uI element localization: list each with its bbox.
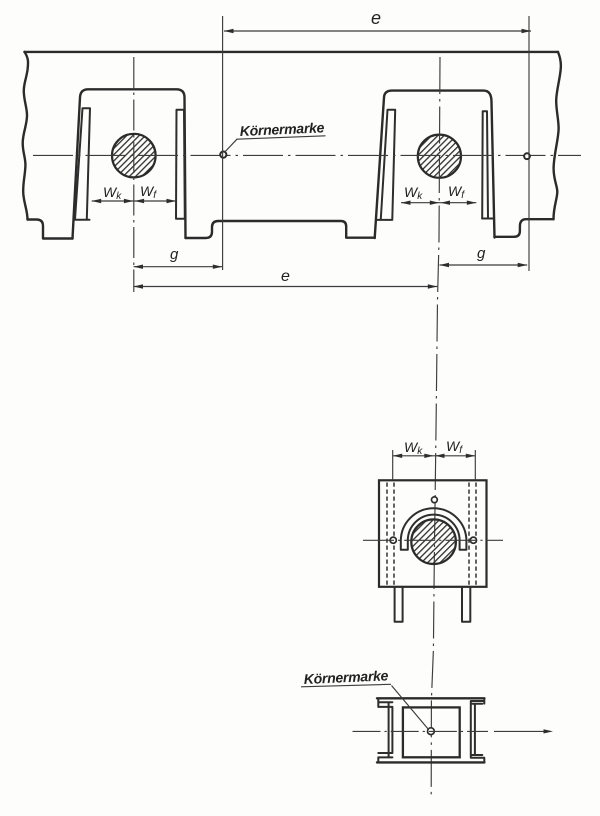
svg-text:e: e [281, 268, 290, 285]
svg-text:e: e [371, 8, 381, 28]
svg-text:g: g [170, 246, 179, 263]
svg-text:g: g [477, 245, 486, 262]
